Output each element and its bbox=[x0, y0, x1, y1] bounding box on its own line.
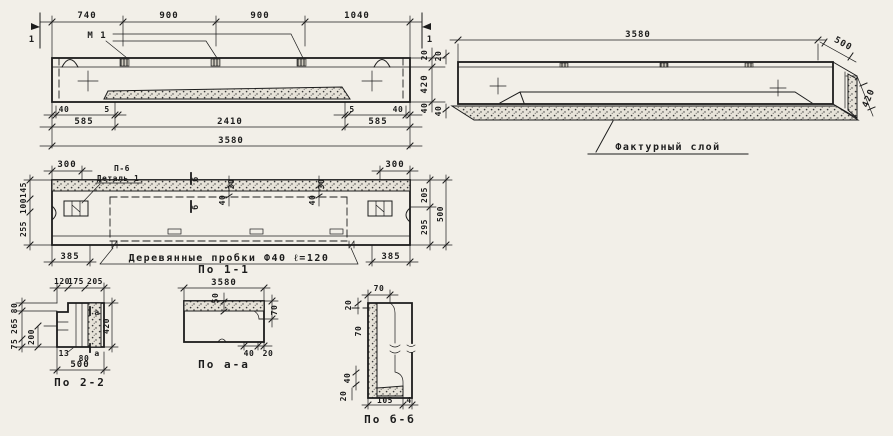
dim-left-145: 145 bbox=[19, 182, 28, 198]
cut-letter-a-top: а bbox=[94, 308, 99, 317]
dim-385-right: 385 bbox=[381, 252, 400, 262]
dim-205: 205 bbox=[87, 277, 103, 286]
dim-cut2-40: 40 bbox=[308, 195, 317, 206]
section-mark-1-left: 1 bbox=[29, 35, 35, 45]
dim-bb-20-corner: 20 bbox=[339, 391, 348, 402]
detail-label: Деталь 1 bbox=[97, 174, 140, 183]
blueprint-sheet: 740 900 900 1040 1 1 М 1 20 420 40 40 5 … bbox=[0, 0, 893, 436]
section-2-2: а а 120 175 205 80 265 75 200 420 13 80 … bbox=[10, 277, 118, 389]
dim-right-500: 500 bbox=[436, 206, 445, 222]
dim-small-40l: 40 bbox=[59, 105, 70, 114]
lifting-loop-icon bbox=[62, 60, 390, 68]
dim-bb-40-lower: 40 bbox=[343, 373, 352, 384]
cut-letter-b-bottom: б bbox=[190, 204, 200, 209]
dim-left-80: 80 bbox=[10, 303, 19, 314]
dim-step-70: 70 bbox=[270, 305, 279, 316]
title-section-1-1: По 1-1 bbox=[198, 263, 250, 276]
dim-left-75: 75 bbox=[10, 339, 19, 350]
caption-section-a-a: По а-а bbox=[198, 358, 250, 371]
dim-300-left: 300 bbox=[57, 160, 76, 170]
dim-bb-70-top: 70 bbox=[374, 284, 385, 293]
dim-420-axon: 420 bbox=[861, 87, 877, 109]
dim-cut1-30: 30 bbox=[227, 179, 236, 190]
dim-right-20: 20 bbox=[420, 50, 429, 61]
dim-right-420-s22: 420 bbox=[102, 318, 111, 334]
section-mark-1-right: 1 bbox=[427, 35, 433, 45]
dim-3580-axon: 3580 bbox=[625, 30, 651, 40]
view-axonometric: 3580 500 420 20 40 Фактурный слой bbox=[434, 30, 877, 154]
dim-cut1-40: 40 bbox=[218, 195, 227, 206]
view-plan: 300 300 П-6 Деталь 1 б б 30 40 30 40 145 bbox=[19, 160, 452, 266]
cut-letter-b-top: б bbox=[190, 176, 200, 181]
caption-section-b-b: По б-б bbox=[364, 413, 416, 426]
dim-13: 13 bbox=[59, 349, 70, 358]
anchor-mark-label: М 1 bbox=[87, 31, 106, 41]
view-front-elevation: 740 900 900 1040 1 1 М 1 20 420 40 40 5 … bbox=[29, 11, 445, 149]
dim-cut2-30: 30 bbox=[317, 179, 326, 190]
dim-1040: 1040 bbox=[344, 11, 370, 21]
dim-edge-40: 40 bbox=[434, 106, 443, 117]
textured-layer-label: Фактурный слой bbox=[615, 141, 720, 153]
dim-layer-50: 50 bbox=[211, 293, 220, 304]
caption-section-2-2: По 2-2 bbox=[54, 376, 106, 389]
cross-mark-icon bbox=[490, 78, 786, 96]
dim-585r: 585 bbox=[368, 117, 387, 127]
dim-inner-200: 200 bbox=[27, 329, 36, 345]
dim-900a: 900 bbox=[159, 11, 178, 21]
dim-585l: 585 bbox=[74, 117, 93, 127]
dim-3580-elev: 3580 bbox=[218, 136, 244, 146]
dim-bb-4: 4 bbox=[406, 396, 411, 405]
dim-bottom-500: 500 bbox=[70, 360, 89, 370]
dim-900b: 900 bbox=[250, 11, 269, 21]
dim-385-left: 385 bbox=[60, 252, 79, 262]
dim-right-420: 420 bbox=[420, 74, 430, 93]
section-1-1: По 1-1 3580 50 70 40 20 По а-а bbox=[178, 263, 279, 371]
dim-right-40: 40 bbox=[420, 103, 429, 114]
dim-left-265: 265 bbox=[10, 318, 19, 334]
dim-right-295: 295 bbox=[420, 219, 429, 235]
dim-2410: 2410 bbox=[217, 117, 243, 127]
dim-aa-40: 40 bbox=[244, 349, 255, 358]
dim-aa-20: 20 bbox=[263, 349, 274, 358]
dim-bb-105: 105 bbox=[377, 396, 393, 405]
cut-letter-a-bottom: а bbox=[94, 349, 99, 358]
dim-left-255: 255 bbox=[19, 221, 28, 237]
dim-small-40r: 40 bbox=[393, 105, 404, 114]
dim-small-5l: 5 bbox=[104, 105, 109, 114]
dim-bb-70-mid: 70 bbox=[354, 326, 363, 337]
dim-3580-s11: 3580 bbox=[211, 278, 237, 288]
dim-740: 740 bbox=[77, 11, 96, 21]
series-label: П-6 bbox=[114, 164, 130, 173]
dim-175: 175 bbox=[68, 277, 84, 286]
drawing-canvas: 740 900 900 1040 1 1 М 1 20 420 40 40 5 … bbox=[0, 0, 893, 436]
dim-300-right: 300 bbox=[385, 160, 404, 170]
dim-edge-20: 20 bbox=[434, 51, 443, 62]
dim-small-5r: 5 bbox=[349, 105, 354, 114]
dim-bb-20-upper: 20 bbox=[344, 300, 353, 311]
dim-right-205: 205 bbox=[420, 187, 429, 203]
section-b-b: 70 20 70 40 20 105 4 По б-б bbox=[339, 284, 418, 426]
dim-left-100: 100 bbox=[19, 198, 28, 214]
